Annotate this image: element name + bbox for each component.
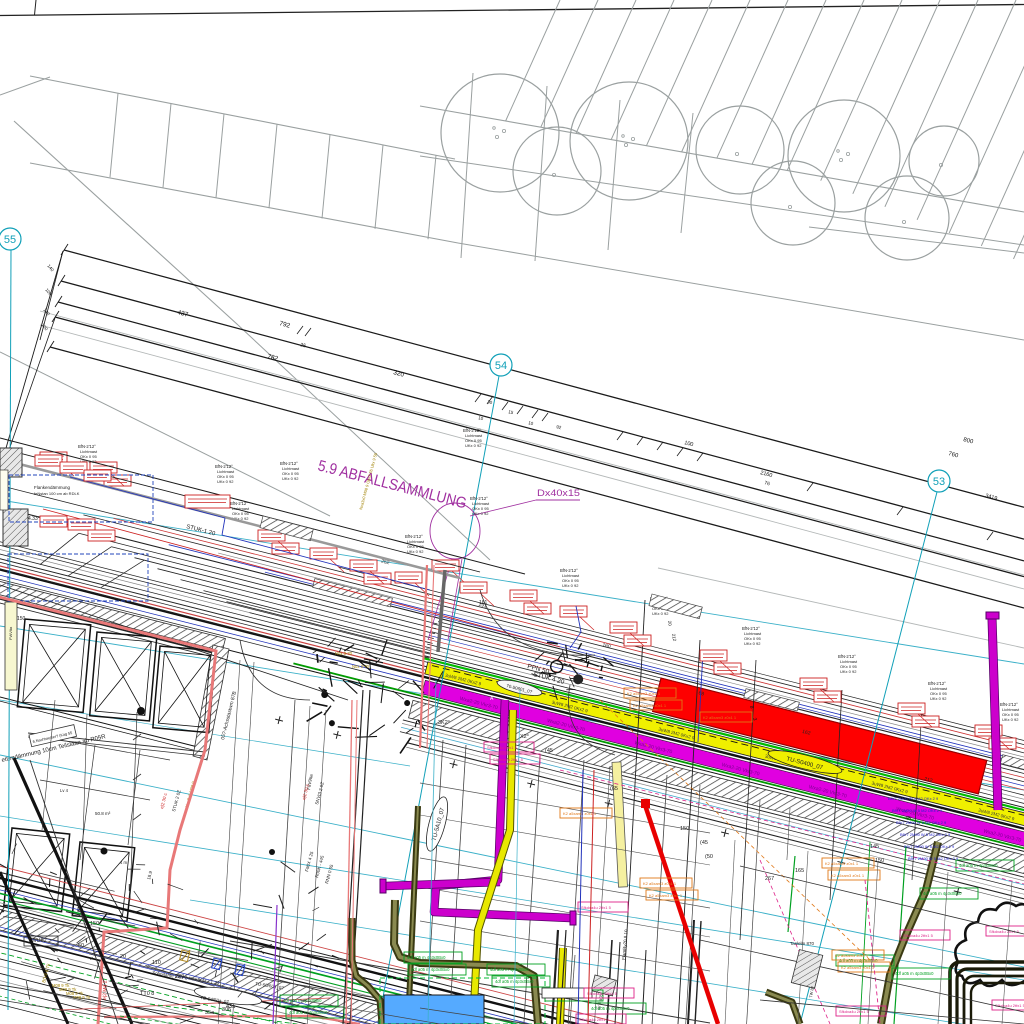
svg-text:Sfkdxa4u 2tfx1 5: Sfkdxa4u 2tfx1 5	[579, 1017, 610, 1022]
svg-text:54: 54	[495, 360, 507, 372]
svg-text:UKx 0 92: UKx 0 92	[562, 583, 579, 588]
svg-text:150: 150	[17, 616, 26, 622]
svg-text:161: 161	[479, 600, 488, 606]
svg-text:Taslelm 870: Taslelm 870	[790, 941, 815, 946]
svg-text:K2 a5xam3 z0x1 1: K2 a5xam3 z0x1 1	[563, 811, 597, 816]
svg-text:K2 a5xam3 z0x1 1: K2 a5xam3 z0x1 1	[643, 881, 677, 886]
svg-text:UKx 0 92: UKx 0 92	[930, 696, 947, 701]
svg-text:BfV7 2M90 W 5 M2 OKx 2 9: BfV7 2M90 W 5 M2 OKx 2 9	[904, 844, 955, 849]
svg-text:BfV7 2M90 W 5 M2 OKx 2 9: BfV7 2M90 W 5 M2 OKx 2 9	[900, 832, 951, 837]
svg-text:4df a05 m 4p3x0Bx0: 4df a05 m 4p3x0Bx0	[411, 967, 450, 972]
svg-text:TWU02: TWU02	[28, 938, 47, 944]
svg-text:165: 165	[795, 868, 804, 874]
svg-text:50.8 m³: 50.8 m³	[95, 811, 111, 816]
svg-text:4df a05 m 4p3x0Bx0: 4df a05 m 4p3x0Bx0	[923, 891, 962, 896]
svg-text:Flankendämmung: Flankendämmung	[34, 485, 71, 490]
svg-text:UKx 0 92: UKx 0 92	[1002, 717, 1019, 722]
svg-text:Sfkdxa4u 2tfx1 5: Sfkdxa4u 2tfx1 5	[487, 745, 518, 750]
svg-text:BfV7 2M90 W 5 M2 OKx 2 9: BfV7 2M90 W 5 M2 OKx 2 9	[888, 796, 939, 801]
svg-text:UKx 0 92: UKx 0 92	[744, 641, 761, 646]
svg-text:110: 110	[152, 960, 161, 966]
svg-text:3K2°: 3K2°	[438, 720, 450, 726]
svg-text:UKx 0 92: UKx 0 92	[407, 549, 424, 554]
svg-text:BfV7 2M90 W 5 M2 OKx 2 9: BfV7 2M90 W 5 M2 OKx 2 9	[908, 856, 959, 861]
svg-text:Dx40x15: Dx40x15	[537, 488, 580, 499]
svg-text:Sfkdxa4u 2tfx1 5: Sfkdxa4u 2tfx1 5	[903, 933, 934, 938]
svg-text:feNstan 100 cm ab RDLK: feNstan 100 cm ab RDLK	[34, 491, 80, 496]
svg-text:UKx 0 92: UKx 0 92	[217, 479, 234, 484]
svg-text:Sfkdxa4u 2tfx1 5: Sfkdxa4u 2tfx1 5	[581, 905, 612, 910]
svg-text:150: 150	[875, 858, 884, 864]
svg-text:Lv 4: Lv 4	[60, 788, 69, 793]
svg-text:e|2 Md 2: e|2 Md 2	[102, 980, 109, 1000]
svg-text:UKx 0 92: UKx 0 92	[282, 476, 299, 481]
svg-text:TT0 8: TT0 8	[140, 991, 154, 997]
svg-text:K2 a5xam3 z0x1 1: K2 a5xam3 z0x1 1	[627, 691, 661, 696]
svg-text:53: 53	[933, 476, 945, 488]
svg-text:4df a05 m 4p3x0Bx0: 4df a05 m 4p3x0Bx0	[591, 1006, 630, 1011]
svg-text:K2 a5xam3 z0x1 1: K2 a5xam3 z0x1 1	[649, 893, 683, 898]
svg-text:K2 a5xam3 z0x1 1: K2 a5xam3 z0x1 1	[703, 715, 737, 720]
svg-text:35a: 35a	[205, 1010, 215, 1016]
svg-text:K2 a5xam3 z0x1 1: K2 a5xam3 z0x1 1	[831, 873, 865, 878]
svg-text:(65: (65	[610, 786, 618, 792]
svg-text:55: 55	[4, 234, 16, 246]
svg-text:K2 a5xam3 z0x1 1: K2 a5xam3 z0x1 1	[825, 861, 859, 866]
svg-text:BfV7 2M90 W 5 M2 OKx 2 9: BfV7 2M90 W 5 M2 OKx 2 9	[892, 808, 943, 813]
svg-text:150: 150	[90, 921, 99, 927]
svg-text:Sfkdxa4u 2tfx1 5: Sfkdxa4u 2tfx1 5	[995, 1003, 1024, 1008]
svg-text:145: 145	[870, 844, 879, 850]
svg-text:(45: (45	[545, 748, 553, 754]
svg-text:N0x 3-70: N0x 3-70	[352, 664, 370, 669]
svg-text:Sfkdxa4u 2tfx1 5: Sfkdxa4u 2tfx1 5	[587, 991, 618, 996]
svg-text:UKx 0 92: UKx 0 92	[840, 669, 857, 674]
svg-text:4df a05 m 4p3x0Bx0: 4df a05 m 4p3x0Bx0	[407, 955, 446, 960]
svg-text:UKx 0 92: UKx 0 92	[652, 611, 669, 616]
svg-text:BfV7 2M90 W 5 M2 OKx 2 9: BfV7 2M90 W 5 M2 OKx 2 9	[896, 820, 947, 825]
svg-text:4df a05 m 4p3x0Bx0: 4df a05 m 4p3x0Bx0	[895, 971, 934, 976]
svg-text:150: 150	[680, 826, 689, 832]
svg-text:20: 20	[120, 954, 126, 960]
svg-text:FWVlta: FWVlta	[8, 626, 13, 640]
svg-text:4df a05 m 4p3x0Bx0: 4df a05 m 4p3x0Bx0	[959, 863, 998, 868]
svg-text:UKx 0 92: UKx 0 92	[465, 443, 482, 448]
svg-text:K2 a5xam3 z0x1 1: K2 a5xam3 z0x1 1	[841, 965, 875, 970]
svg-text:N0x 3-70: N0x 3-70	[335, 651, 353, 656]
svg-text:267: 267	[765, 876, 774, 882]
svg-text:M08 9 Tk: M08 9 Tk	[73, 995, 91, 1000]
svg-text:X2°: X2°	[520, 734, 529, 740]
svg-text:306: 306	[222, 1007, 231, 1013]
svg-text:K2 a5xam3 z0x1 1: K2 a5xam3 z0x1 1	[633, 703, 667, 708]
svg-text:UKx 0 92: UKx 0 92	[472, 511, 489, 516]
svg-text:4.33°: 4.33°	[28, 516, 40, 522]
svg-text:45: 45	[905, 816, 911, 822]
svg-text:4 m: 4 m	[120, 860, 127, 865]
svg-text:(45: (45	[700, 840, 708, 846]
svg-text:4df a05 m 4p3x0Bx0: 4df a05 m 4p3x0Bx0	[289, 1010, 328, 1015]
svg-text:4df a05 m 4p3x0Bx0: 4df a05 m 4p3x0Bx0	[490, 967, 529, 972]
svg-text:(50: (50	[705, 854, 713, 860]
